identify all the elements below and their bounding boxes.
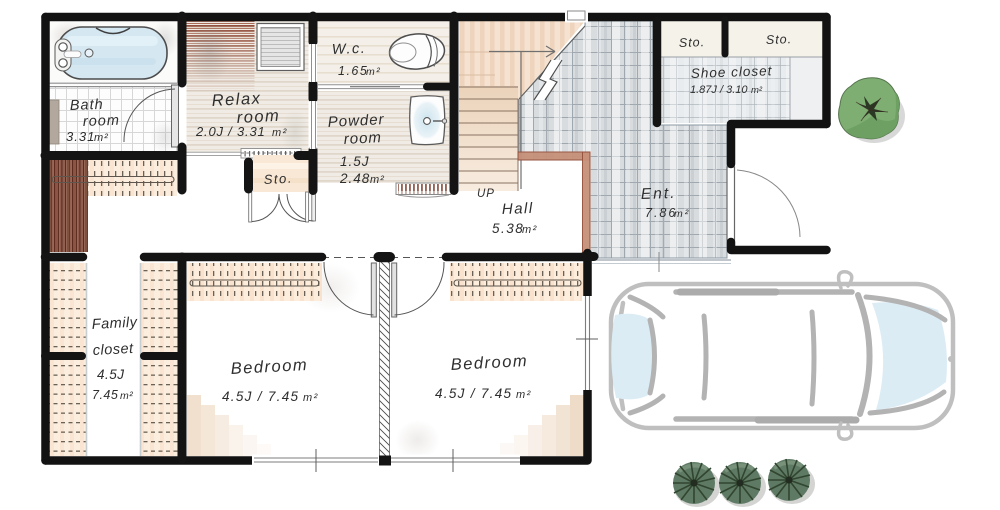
svg-text:m²: m² (303, 392, 319, 404)
svg-text:Sto.: Sto. (263, 170, 293, 187)
svg-text:m²: m² (516, 389, 532, 401)
svg-text:W.c.: W.c. (332, 41, 367, 58)
svg-text:m²: m² (522, 224, 538, 236)
svg-text:1.65: 1.65 (338, 64, 368, 78)
svg-text:m²: m² (366, 66, 381, 78)
svg-text:m²: m² (120, 390, 133, 402)
svg-text:closet: closet (92, 341, 134, 359)
svg-text:Shoe closet: Shoe closet (691, 63, 773, 81)
svg-text:7.86: 7.86 (645, 206, 677, 220)
svg-text:4.5J / 7.45: 4.5J / 7.45 (222, 389, 299, 404)
svg-text:m²: m² (751, 85, 763, 96)
svg-text:Ent.: Ent. (641, 185, 677, 203)
svg-text:Relax: Relax (211, 89, 262, 110)
svg-text:5.38: 5.38 (492, 221, 524, 236)
svg-text:Powder: Powder (327, 111, 385, 131)
svg-text:1.5J: 1.5J (340, 154, 370, 169)
svg-text:m²: m² (272, 127, 288, 139)
svg-text:2.48: 2.48 (339, 171, 370, 186)
svg-text:m²: m² (370, 174, 385, 186)
svg-text:1.87J / 3.10: 1.87J / 3.10 (690, 84, 748, 96)
svg-text:Family: Family (91, 315, 138, 333)
svg-text:Bath: Bath (70, 97, 104, 114)
svg-text:room: room (83, 113, 121, 130)
svg-text:UP: UP (477, 188, 495, 200)
svg-text:4.5J / 7.45: 4.5J / 7.45 (435, 386, 512, 401)
svg-text:m²: m² (674, 208, 690, 220)
svg-text:Hall: Hall (502, 200, 534, 218)
svg-text:7.45: 7.45 (92, 388, 118, 402)
svg-text:2.0J / 3.31: 2.0J / 3.31 (195, 124, 266, 139)
svg-text:m²: m² (94, 132, 109, 144)
svg-text:Sto.: Sto. (679, 35, 706, 50)
svg-text:Sto.: Sto. (766, 32, 793, 47)
svg-text:4.5J: 4.5J (97, 367, 125, 382)
svg-text:room: room (343, 129, 382, 148)
svg-text:3.31: 3.31 (66, 129, 95, 144)
